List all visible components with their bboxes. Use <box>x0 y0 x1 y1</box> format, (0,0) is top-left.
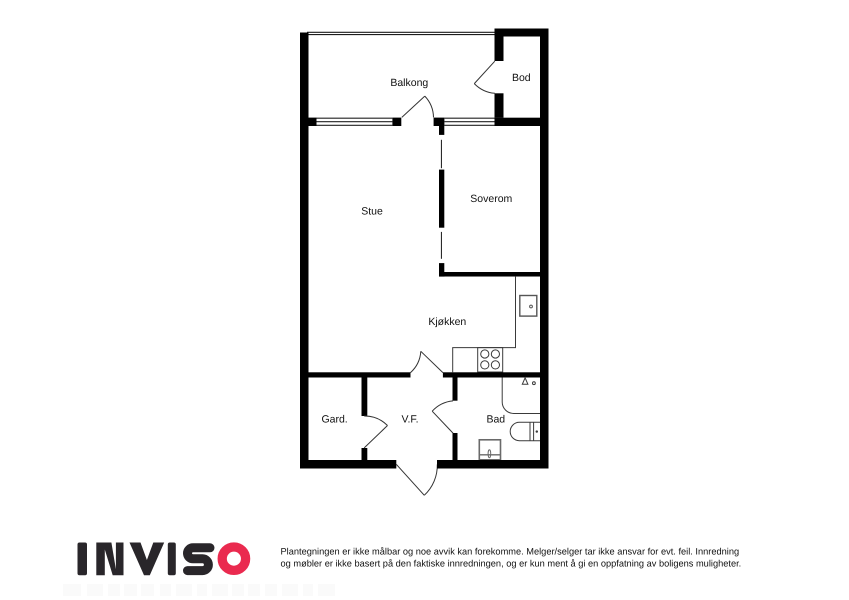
svg-text:V.F.: V.F. <box>401 414 418 426</box>
svg-text:Soverom: Soverom <box>470 193 512 205</box>
svg-text:Gard.: Gard. <box>321 414 347 426</box>
svg-text:Plantegningen er ikke målbar o: Plantegningen er ikke målbar og noe avvi… <box>281 547 740 557</box>
svg-text:Stue: Stue <box>361 205 383 217</box>
svg-text:Kjøkken: Kjøkken <box>428 316 466 328</box>
svg-text:Bod: Bod <box>512 72 531 84</box>
svg-text:Balkong: Balkong <box>390 77 428 89</box>
svg-text:Bad: Bad <box>486 414 505 426</box>
svg-text:og møbler er ikke basert på de: og møbler er ikke basert på den faktiske… <box>281 559 742 569</box>
